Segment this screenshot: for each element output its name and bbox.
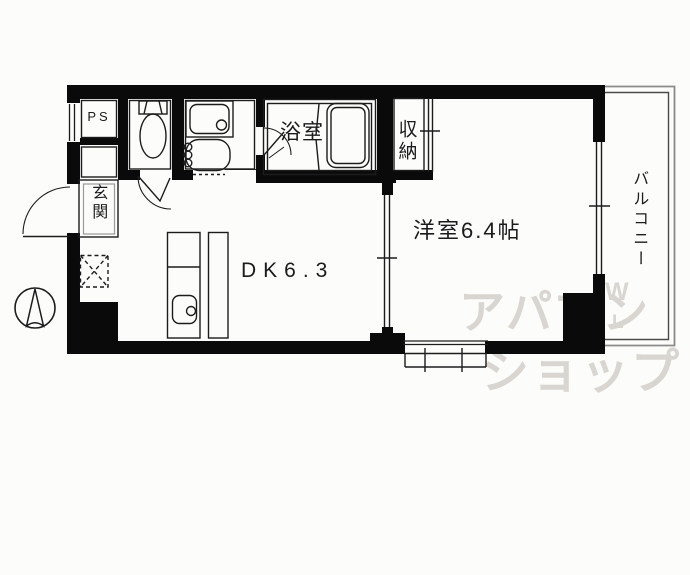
wall-segment <box>382 327 393 354</box>
wall-segment <box>67 341 405 354</box>
toilet-door-arc <box>138 176 171 209</box>
room-label-bathroom: 浴室 <box>280 122 324 145</box>
wall-segment <box>593 274 605 354</box>
kitchen-sink <box>173 296 197 324</box>
wall-segment <box>377 95 393 180</box>
kitchen-counter <box>168 233 229 339</box>
walls <box>67 85 605 354</box>
washroom-outline <box>186 101 255 170</box>
toilet-fixture <box>139 101 167 158</box>
shoe-cabinet-outline <box>82 147 117 177</box>
wall-segment <box>67 85 605 99</box>
washing-machine-fixture <box>184 140 230 171</box>
room-label-entrance: 玄関 <box>89 184 106 222</box>
refrigerator-space <box>81 256 109 288</box>
wall-segment <box>593 85 605 142</box>
toilet-room-outline <box>130 101 171 170</box>
wall-segment <box>172 95 184 180</box>
wall-segment <box>118 95 128 180</box>
entrance-door-arc <box>23 187 70 237</box>
balcony-window <box>589 142 610 274</box>
wall-segment <box>78 138 118 145</box>
bay-window <box>403 341 488 372</box>
room-label-ps: PS <box>80 110 118 124</box>
washbasin-fixture <box>186 101 233 137</box>
room-label-dining-kitchen: DK6.3 <box>241 260 334 283</box>
room-sliding-door <box>377 195 397 327</box>
closet-door <box>420 98 440 172</box>
wall-segment <box>382 172 393 195</box>
floor-plan: アパマン W L ショップ <box>0 0 690 575</box>
room-label-western-room: 洋室6.4帖 <box>413 219 522 243</box>
room-label-balcony: バルコニー <box>630 170 647 270</box>
wall-segment <box>390 170 433 180</box>
wall-segment <box>184 170 193 180</box>
room-label-storage: 収納 <box>395 119 416 163</box>
ps-vent-window <box>67 103 80 142</box>
north-arrow-icon <box>15 288 55 328</box>
floor-plan-drawing <box>0 0 690 575</box>
